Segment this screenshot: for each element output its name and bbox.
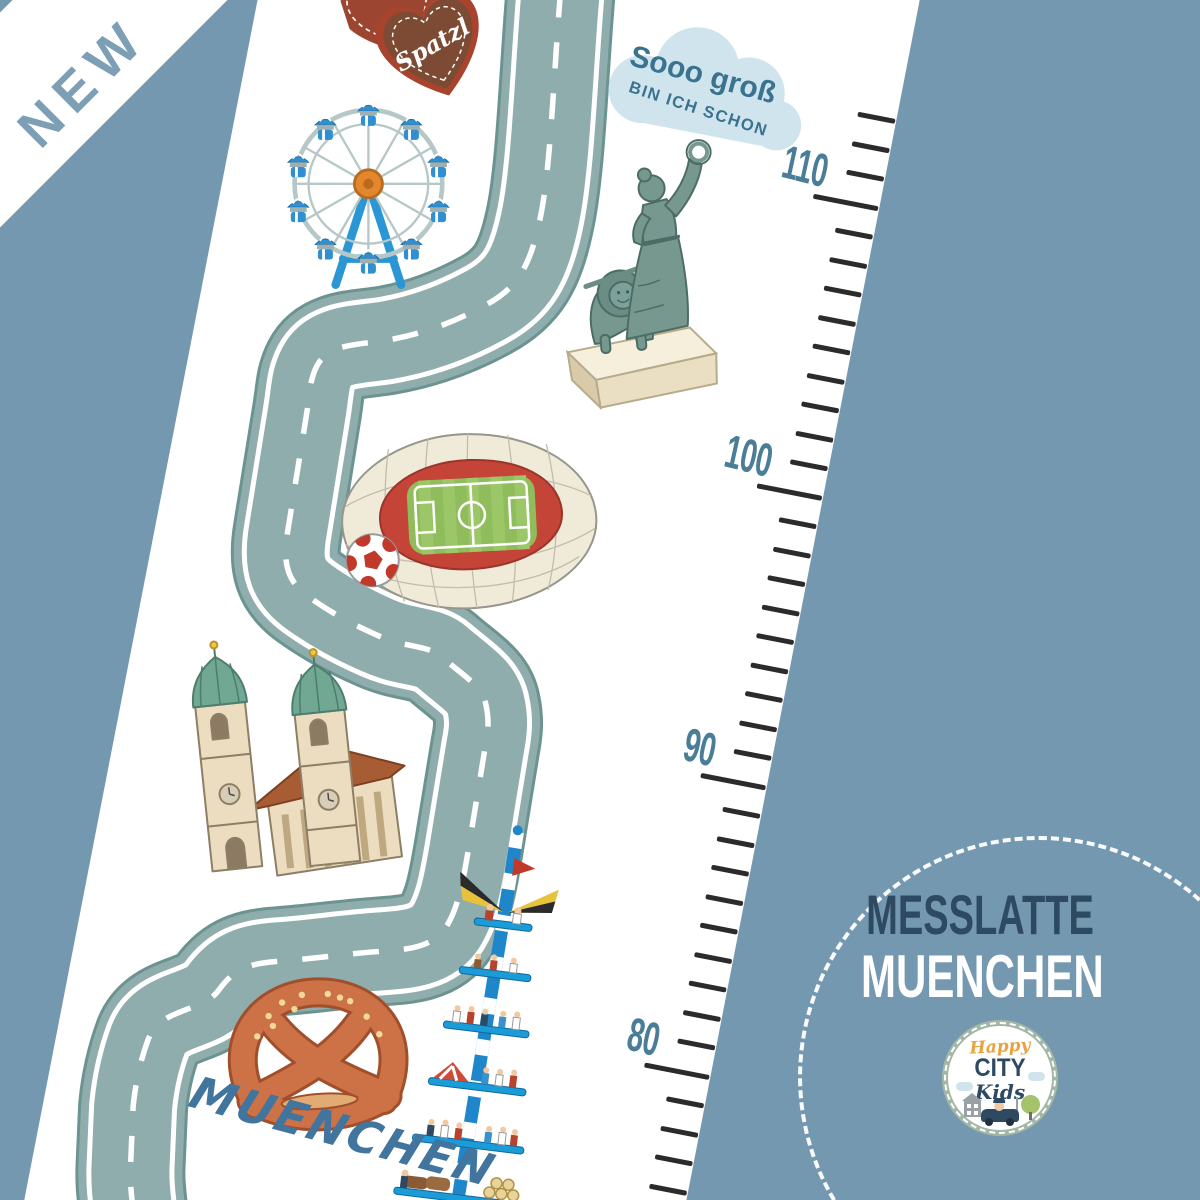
logo-cloud-icon	[1028, 1072, 1045, 1081]
ruler-tick	[683, 1009, 721, 1021]
ruler-tick	[677, 1038, 715, 1050]
ruler-tick	[649, 1183, 687, 1195]
ruler-tick	[795, 430, 833, 442]
ruler-tick	[829, 257, 867, 269]
ruler-tick	[762, 604, 800, 616]
logo-driver-icon	[994, 1101, 1004, 1111]
ruler-tick	[666, 1096, 704, 1108]
ruler-tick	[717, 836, 755, 848]
ruler-tick	[757, 483, 823, 501]
ruler-tick	[756, 633, 794, 645]
ruler-tick	[767, 575, 805, 587]
ruler-tick	[745, 691, 783, 703]
ruler-tick	[688, 980, 726, 992]
ruler-tick	[790, 459, 828, 471]
logo-car-icon	[981, 1109, 1019, 1122]
ruler-tick	[694, 952, 732, 964]
ruler-tick	[722, 807, 760, 819]
new-ribbon-label: NEW	[6, 6, 160, 160]
ruler-tick	[779, 517, 817, 529]
ruler-number: 90	[679, 720, 719, 774]
ruler-number: 100	[721, 427, 776, 484]
ruler-tick	[700, 772, 766, 790]
ruler-tick	[818, 314, 856, 326]
ruler-tick	[813, 193, 879, 211]
happy-city-kids-logo: Happy CITY Kids	[942, 1020, 1058, 1136]
ruler-tick	[835, 228, 873, 240]
ruler-tick	[711, 865, 749, 877]
ruler-tick	[705, 894, 743, 906]
logo-cloud-icon	[956, 1082, 973, 1091]
ruler-tick	[773, 546, 811, 558]
ruler-tick	[801, 401, 839, 413]
ruler-tick	[812, 343, 850, 355]
ruler-tick	[852, 141, 890, 153]
ruler-tick	[739, 720, 777, 732]
ruler-tick	[660, 1125, 698, 1137]
ruler-tick	[655, 1154, 693, 1166]
ruler-number: 80	[623, 1010, 663, 1064]
ruler-tick	[700, 923, 738, 935]
logo-house-icon	[964, 1101, 981, 1117]
logo-tree-icon	[1021, 1095, 1040, 1114]
ruler-tick	[857, 112, 895, 124]
ruler-tick	[644, 1062, 710, 1080]
ruler-tick	[807, 372, 845, 384]
product-title-line2: MUENCHEN	[861, 942, 1099, 1011]
ruler-tick	[750, 662, 788, 674]
ruler-number: 110	[779, 137, 833, 194]
ruler-tick	[824, 285, 862, 297]
product-title-line1: MESSLATTE	[864, 882, 1095, 947]
ruler-tick	[846, 170, 884, 182]
ruler-tick	[733, 749, 771, 761]
product-image: Spatzl	[0, 0, 1200, 1200]
